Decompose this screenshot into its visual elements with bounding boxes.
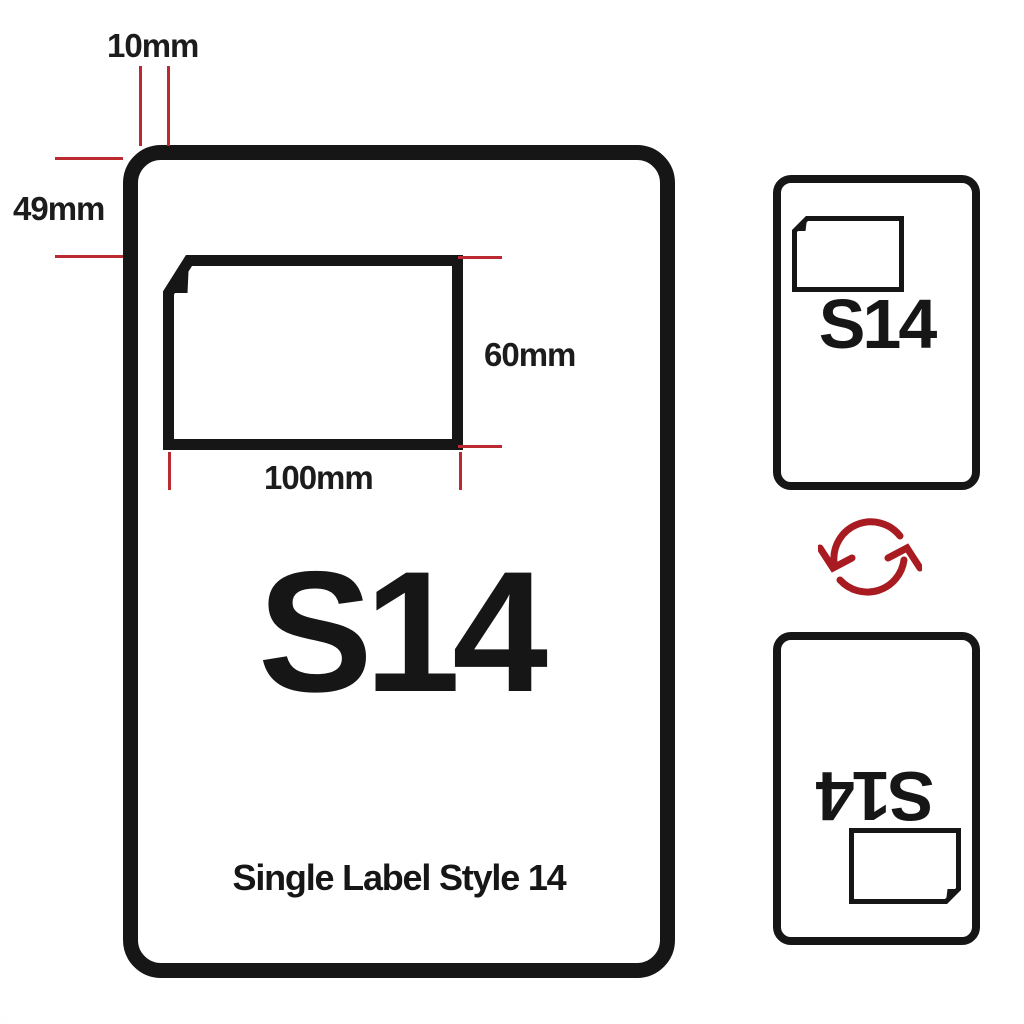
dim-line-label-width-a <box>168 452 171 490</box>
dim-left-offset-label: 10mm <box>107 29 198 62</box>
dim-line-left-offset-a <box>139 66 142 146</box>
dim-label-height-label: 60mm <box>484 338 575 371</box>
dim-line-top-offset-a <box>55 157 123 160</box>
dim-line-label-width-b <box>459 452 462 490</box>
preview-front-code: S14 <box>781 289 972 359</box>
rotate-arrows-icon <box>818 512 922 604</box>
preview-card-back-content: S14 <box>781 640 972 937</box>
mini-label-icon <box>792 216 904 292</box>
preview-card-back: S14 <box>773 632 980 945</box>
dim-line-left-offset-b <box>167 66 170 146</box>
preview-back-code: S14 <box>781 761 972 831</box>
sheet-style-code: S14 <box>138 546 660 718</box>
dim-line-label-height-a <box>458 256 502 259</box>
sheet-caption: Single Label Style 14 <box>138 860 660 896</box>
label-outline-icon <box>163 255 463 450</box>
preview-card-front: S14 <box>773 175 980 490</box>
dim-label-width-label: 100mm <box>264 461 373 494</box>
mini-label-icon <box>849 828 961 904</box>
label-spec-diagram: S14 Single Label Style 14 10mm 49mm 60mm… <box>0 0 1024 1024</box>
preview-card-front-content: S14 <box>781 183 972 482</box>
dim-top-offset-label: 49mm <box>13 192 104 225</box>
dim-line-top-offset-b <box>55 255 123 258</box>
dim-line-label-height-b <box>458 445 502 448</box>
